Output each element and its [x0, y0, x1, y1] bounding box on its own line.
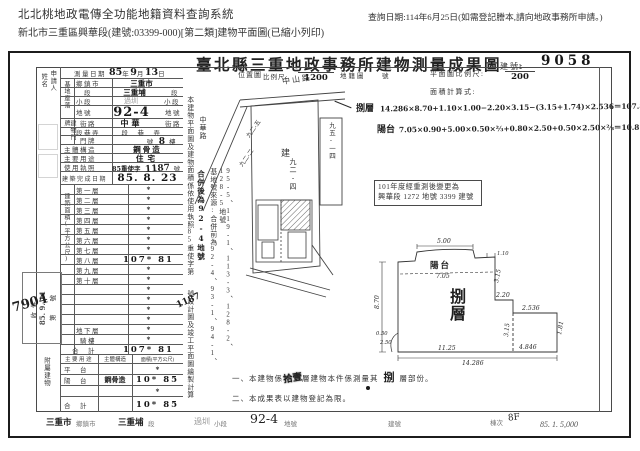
- floor-row: 第三層*: [60, 205, 183, 215]
- plan-scale-num: 1: [505, 63, 535, 72]
- floor-row: 第七層*: [60, 245, 183, 255]
- plan-floor-label: 捌層: [448, 288, 464, 332]
- annex-structure: 鋼骨造: [98, 375, 132, 385]
- survey-day: 13: [145, 67, 158, 78]
- balcony-formula-label: 陽台: [377, 122, 395, 135]
- annex-row: *: [60, 386, 183, 397]
- floor-value: *: [114, 205, 183, 214]
- annex-row-balcony: 陽 台 鋼骨造 10* 85: [60, 375, 183, 386]
- dim-corner-a: 0.50: [376, 331, 388, 337]
- complete-date-label: 建築完成日期: [60, 174, 112, 183]
- floor-row: 第五層*: [60, 225, 183, 235]
- floor-value: *: [114, 275, 183, 284]
- floor-row: 第二層*: [60, 195, 183, 205]
- floor-row: 第九層*: [60, 265, 183, 275]
- site-label: 小段: [60, 96, 98, 106]
- dim-annex-height: 3.15: [503, 323, 511, 337]
- floor-label: 騎樓: [60, 335, 114, 345]
- floor-label: 第六層: [60, 235, 114, 245]
- side-note-main: 本建物平面圖及建物面積係依使用執照85重使字第號設計圖及竣工平面圖繪製計算: [185, 96, 192, 408]
- annex-area: *: [132, 365, 183, 374]
- floor-row: 地下層*: [60, 325, 183, 335]
- parcel-label-center: 九二-四: [289, 158, 296, 204]
- site-label: 地號: [60, 107, 98, 117]
- license-row: 使用執照 85重使字 1187 號: [60, 163, 183, 172]
- floor-row: *: [60, 295, 183, 305]
- floor-label: 第二層: [60, 195, 114, 205]
- floor-value: *: [114, 265, 183, 274]
- plan-scale-den: 200: [505, 72, 535, 82]
- floor-value: *: [114, 245, 183, 254]
- floor-label: 地下層: [60, 325, 114, 335]
- dim-left-height: 8.70: [374, 295, 381, 309]
- print-info: 新北市三重區興華段(建號:03399-000)[第二類]建物平面圖(已縮小列印): [18, 24, 324, 39]
- stamp-line3: 第 號: [47, 295, 57, 321]
- query-date: 查詢日期:114年6月25日(如需登記謄本,請向地政事務所申請。): [368, 10, 603, 23]
- annex-row: 平 台 *: [60, 364, 183, 375]
- applicant-label-2: 姓名: [40, 73, 46, 99]
- note-2: 二、本成果表以建物登記為限。: [232, 393, 351, 404]
- site-suffix: 地號: [165, 107, 183, 117]
- footer-town-value: 三重市: [46, 416, 72, 428]
- parcel-label-right: 九五-一四: [327, 122, 334, 180]
- area-calc-label: 面積計算式:: [430, 87, 476, 97]
- annex-total-label: 合 計: [60, 400, 98, 410]
- note1-suffix: 層部份。: [400, 374, 434, 383]
- note-1: 一、本建物係拾壹層建物本件係測量其捌層部份。: [232, 368, 434, 386]
- floor-value: 107* 81: [114, 255, 183, 265]
- faint-stamp: [38, 124, 58, 150]
- applicant-label: 申請人: [49, 70, 55, 108]
- dim-balcony-total: 7.05: [436, 273, 450, 280]
- footer-subsection-value: 過圳: [194, 416, 210, 427]
- annex-header: 主體構造: [98, 355, 132, 363]
- dim-corner-b: 2.50: [379, 340, 392, 346]
- site-suffix: 小段: [164, 96, 183, 106]
- floor-row: 第一層*: [60, 185, 183, 195]
- floor-label: 第八層: [60, 255, 114, 265]
- floor-total-label: 合 計: [60, 345, 114, 355]
- dim-annex-bottom: 4.846: [518, 344, 537, 351]
- annex-area: *: [132, 387, 183, 396]
- floor-value: *: [114, 335, 183, 344]
- note1-hand-floor: 捌: [379, 371, 400, 384]
- dim-annex-right: 1.81: [556, 321, 565, 336]
- faint-stamp: [38, 154, 58, 178]
- dim-right-upper: 3.15: [493, 268, 503, 283]
- footer-lot-label: 地號: [284, 418, 297, 428]
- floor-value: *: [114, 325, 183, 334]
- floor-row-8f: 第八層107* 81: [60, 255, 183, 265]
- floor-plan: 5.00 7.05 8.70 3.15 2.20 1.10 2.536 1.81…: [352, 205, 602, 370]
- dim-annex-top: 2.536: [521, 305, 540, 312]
- annex-total-value: 10* 85: [132, 400, 183, 410]
- annex-total-row: 合 計 10* 85: [60, 397, 183, 412]
- dim-step-width: 2.20: [495, 292, 510, 299]
- resurvey-line1: 101年度經重測後變更為: [378, 182, 478, 192]
- floor-label: 第七層: [60, 245, 114, 255]
- annex-use: 陽 台: [60, 375, 98, 385]
- note1-hand-storeys: 拾壹: [282, 369, 303, 386]
- floor-row: 騎樓*: [60, 335, 183, 345]
- annex-area: 10* 85: [132, 375, 183, 385]
- floor-label: 第九層: [60, 265, 114, 275]
- footer-dong-label: 棟次: [490, 417, 503, 427]
- floor-value: *: [114, 185, 183, 194]
- plan-balcony-label: 陽台: [430, 259, 451, 271]
- floor-total-value: 107* 81: [114, 345, 183, 355]
- floor-row: 第六層*: [60, 235, 183, 245]
- footer-town-label: 鄉鎮市: [76, 418, 96, 428]
- footer-lot-value: 92-4: [250, 411, 278, 426]
- floor-label: 第四層: [60, 215, 114, 225]
- side-note-pre: 本建物平面圖及建物面積係依使用執照85重使字第: [186, 96, 193, 276]
- survey-year: 85: [109, 67, 122, 78]
- system-title: 北北桃地政電傳全功能地籍資料查詢系統: [18, 6, 234, 22]
- footer-section-label: 段: [148, 418, 155, 428]
- location-map: [193, 70, 345, 305]
- dim-balcony-width: 5.00: [437, 238, 451, 245]
- road-label-left: 中華路: [199, 116, 206, 154]
- complete-date-value: 85. 8. 23: [112, 172, 183, 184]
- floor-total-row: 合 計107* 81: [60, 345, 183, 355]
- floor-row: *: [60, 315, 183, 325]
- dim-bottom-left: 11.25: [438, 345, 456, 352]
- floor-row: *: [60, 285, 183, 295]
- floor-value: *: [114, 225, 183, 234]
- floor-value: *: [114, 315, 183, 324]
- floor-value: *: [114, 215, 183, 224]
- unit-year: 年: [122, 68, 130, 78]
- footer-dong-value: 8F: [508, 412, 521, 423]
- floor-label: 第五層: [60, 225, 114, 235]
- query-system-page: 北北桃地政電傳全功能地籍資料查詢系統 查詢日期:114年6月25日(如需登記謄本…: [0, 0, 640, 451]
- annex-header: 面積(平方公尺): [132, 356, 183, 363]
- footer-section-value: 三重埔: [118, 416, 144, 428]
- left-table: 申請人 姓名 附屬建物 基地座落 建物門牌 建築面積(平方公尺) 測量日期 85…: [36, 67, 183, 412]
- annex-use: 平 台: [60, 364, 98, 374]
- annex-header: 主要用途: [60, 355, 98, 363]
- survey-date-label: 測量日期: [74, 68, 106, 78]
- floor-row: *: [60, 305, 183, 315]
- license-label: 使用執照: [60, 162, 112, 172]
- annex-group-label: 附屬建物: [42, 357, 49, 409]
- floor-value: *: [114, 195, 183, 204]
- survey-month: 9: [130, 67, 137, 78]
- pen-dot: [366, 386, 370, 390]
- cadastral-no-suffix: 號: [382, 70, 389, 80]
- floor-row: 第四層*: [60, 215, 183, 225]
- floor-row: 第十層*: [60, 275, 183, 285]
- form-print-code: 85. 1. 5,000: [540, 420, 578, 429]
- resurvey-box: 101年度經重測後變更為 興華段 1272 地號 3399 建號: [374, 180, 482, 206]
- floor-formula-label: 捌層: [356, 101, 374, 114]
- plan-scale-fraction: 1 200: [505, 63, 535, 82]
- floor-label: 第一層: [60, 185, 114, 195]
- floor-value: *: [114, 295, 183, 304]
- complete-date-row: 建築完成日期 85. 8. 23: [60, 172, 183, 185]
- dim-bottom-total: 14.286: [462, 360, 484, 367]
- unit-day: 日: [158, 68, 166, 78]
- footer-building-no-label: 建號: [388, 418, 401, 428]
- floor-value: *: [114, 235, 183, 244]
- footer-subsection-label: 小段: [214, 418, 227, 428]
- resurvey-line2: 興華段 1272 地號 3399 建號: [378, 192, 478, 202]
- floor-value: *: [114, 285, 183, 294]
- note1-pre: 一、本建物係: [232, 374, 283, 383]
- note1-mid: 層建物本件係測量其: [302, 374, 379, 383]
- floor-label: 第三層: [60, 205, 114, 215]
- annex-header-row: 主要用途 主體構造 面積(平方公尺): [60, 355, 183, 364]
- floor-value: *: [114, 305, 183, 314]
- plan-scale-label: 平面圖比例尺:: [430, 69, 484, 79]
- unit-month: 月: [137, 68, 145, 78]
- floor-label: 第十層: [60, 275, 114, 285]
- dim-notch: 1.10: [497, 251, 509, 257]
